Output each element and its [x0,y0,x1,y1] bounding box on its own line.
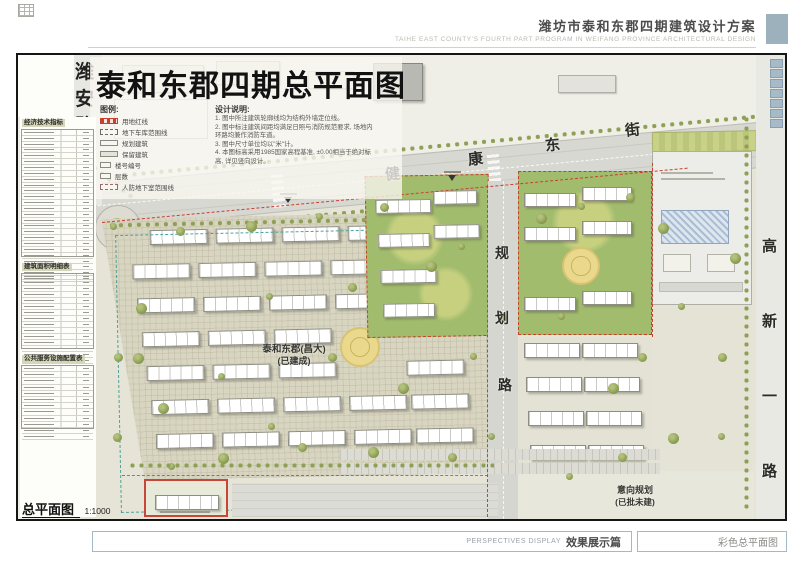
tree [246,221,257,232]
planned-area-label-line1: 意向规划 [575,483,695,496]
design-note-line: 2. 图中标注建筑间距均满足日照与消防规范要求, 场地内环路均兼作消防车道。 [215,124,373,141]
tree [266,293,273,300]
scale-label: 总平面图 1:1000 [22,499,110,519]
legend-swatch-boxgray [100,151,118,157]
tree [668,433,679,444]
design-notes-block: 设计说明: 1. 图中所注建筑轮廓线均为结构外墙定位线。2. 图中标注建筑间距均… [215,104,377,166]
road-label-char: 高 [762,235,777,256]
tree [470,353,477,360]
legend-row: 规划建筑 [100,137,210,148]
tree [578,203,585,210]
legend-row: 地下车库范围线 [100,126,210,137]
legend-label: 用地红线 [122,116,148,126]
legend-row: 楼号编号 [100,159,210,170]
header-accent-square [766,14,788,44]
tree [618,453,627,462]
tree [158,403,169,414]
tree [268,423,275,430]
tree [678,303,685,310]
legend-row: 用地红线 [100,115,210,126]
legend-swatch-numsm [100,173,111,179]
tree [730,253,741,264]
legend-row: 层数 [100,170,210,181]
road-label-char: 东 [544,133,561,155]
road-label-char: 路 [498,375,512,395]
design-note-line: 4. 本图标高采用1985国家高程基准, ±0.00相当于绝对标高, 详见竖向设… [215,149,373,166]
legend-swatch-num [100,162,111,168]
tree [638,353,647,362]
table1-title: 经济技术指标 [22,119,65,127]
table2-title: 建筑面积明细表 [22,263,72,271]
sheet-header-title: 潍坊市泰和东郡四期建筑设计方案 [538,16,756,35]
footer-sheet-name-box: 彩色总平面图 [637,531,787,552]
master-plan-frame: 潍安路 健康东街 规划路 高新一路 泰和东郡(昌大) (已建成) 意向规划 (已… [16,53,787,521]
legend-label: 层数 [115,171,128,181]
road-label-char: 新 [762,310,777,331]
table3-title: 公共服务设施配置表 [22,355,85,363]
legend-title: 图例: [100,104,210,115]
tree [218,373,225,380]
tree [566,473,573,480]
sheet-grid-icon [18,4,34,17]
tree [658,223,669,234]
plan-sheet: 潍坊市泰和东郡四期建筑设计方案 TAIHE EAST COUNTY'S FOUR… [0,0,800,565]
tree [380,203,389,212]
built-area-label-line1: 泰和东郡(昌大) [229,341,359,355]
legend-row: 保留建筑 [100,148,210,159]
design-note-line: 3. 图中尺寸单位均以"米"计。 [215,141,373,150]
tree [368,447,379,458]
sidebar-top-blank [18,55,74,117]
tree [718,353,727,362]
legend-label: 地下车库范围线 [122,127,168,137]
tree [110,223,117,230]
tree [718,433,725,440]
road-label-char: 路 [762,460,777,481]
built-area-label-line2: (已建成) [229,354,359,367]
legend-row: 人防地下室范围线 [100,181,210,192]
design-note-line: 1. 图中所注建筑轮廓线均为结构外墙定位线。 [215,115,373,124]
tree [133,353,144,364]
tree [426,261,437,272]
road-label-char: 康 [467,147,484,169]
tree [136,303,147,314]
design-notes: 1. 图中所注建筑轮廓线均为结构外墙定位线。2. 图中标注建筑间距均满足日照与消… [215,115,377,166]
legend-label: 楼号编号 [115,160,141,170]
indicator-sidebar: 经济技术指标 建筑面积明细表 公共服务设施配置表 [20,117,96,517]
tree [176,227,185,236]
legend-label: 规划建筑 [122,138,148,148]
economic-indicator-table [21,129,94,257]
footer-section-box: PERSPECTIVES DISPLAY 效果展示篇 [92,531,632,552]
table-row [22,434,93,440]
tree [608,383,619,394]
sheet-header-subtitle: TAIHE EAST COUNTY'S FOURTH PART PROGRAM … [395,36,756,43]
legend-swatch-red [100,118,118,124]
tree [626,193,635,202]
legend-label: 保留建筑 [122,149,148,159]
tree [536,213,547,224]
scale-title: 总平面图 [22,502,80,518]
tree [113,433,122,442]
south-tree-row [128,461,494,470]
legend-swatch-box [100,140,118,146]
road-label-char: 划 [495,308,509,328]
tree [398,383,409,394]
tree [558,313,565,320]
footer-chinese: 效果展示篇 [566,534,621,550]
legend-swatch-dash [100,129,118,135]
public-facility-table [21,365,94,429]
design-notes-title: 设计说明: [215,104,377,115]
tree [488,433,495,440]
tree [316,213,323,220]
legend-swatch-wide [100,184,118,190]
road-label-char: 街 [624,118,641,140]
building-area-table [21,273,94,349]
tree [348,283,357,292]
planned-area-label-line2: (已批未建) [575,496,695,508]
legend-label: 人防地下室范围线 [122,182,174,192]
header-rule [88,47,756,48]
legend-items: 用地红线地下车库范围线规划建筑保留建筑楼号编号层数人防地下室范围线 [100,115,210,192]
scale-value: 1:1000 [84,506,110,516]
tree [458,243,465,250]
footer-english: PERSPECTIVES DISPLAY [466,538,561,545]
tree [114,353,123,362]
road-label-char: 一 [762,385,777,406]
tree [298,443,307,452]
road-label-char: 规 [495,243,509,263]
footer-sheet-name: 彩色总平面图 [718,534,778,549]
plan-title: 泰和东郡四期总平面图 [96,61,406,105]
legend-block: 图例: 用地红线地下车库范围线规划建筑保留建筑楼号编号层数人防地下室范围线 [100,104,210,192]
